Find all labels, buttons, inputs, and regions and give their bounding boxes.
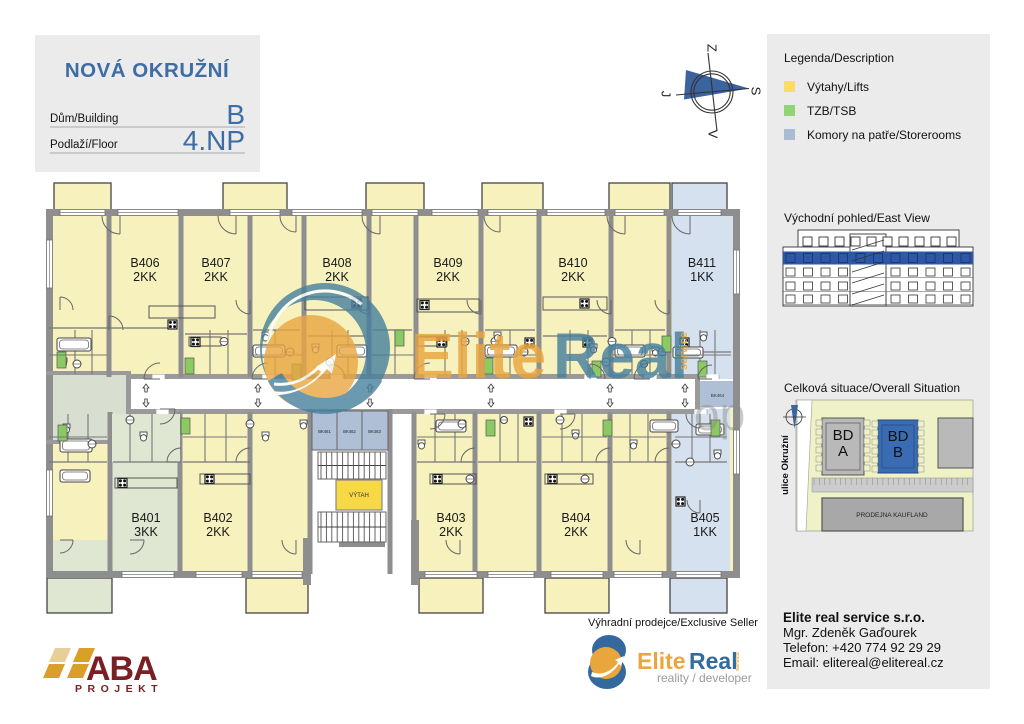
svg-text:B401: B401 — [131, 511, 160, 525]
svg-text:1KK: 1KK — [693, 525, 717, 539]
svg-text:2KK: 2KK — [204, 270, 228, 284]
svg-text:B402: B402 — [203, 511, 232, 525]
svg-text:reality / developer: reality / developer — [657, 671, 752, 685]
svg-text:Email: elitereal@elitereal.cz: Email: elitereal@elitereal.cz — [783, 655, 944, 670]
svg-text:BK461: BK461 — [318, 429, 331, 434]
svg-text:B410: B410 — [558, 256, 587, 270]
svg-text:2KK: 2KK — [439, 525, 463, 539]
svg-text:BK462: BK462 — [343, 429, 356, 434]
svg-text:B408: B408 — [322, 256, 351, 270]
svg-text:Real: Real — [553, 320, 688, 392]
svg-text:Podlaží/Floor: Podlaží/Floor — [50, 139, 118, 151]
svg-text:A: A — [838, 443, 848, 460]
svg-text:Celková situace/Overall Situat: Celková situace/Overall Situation — [784, 381, 960, 395]
svg-text:service: service — [678, 332, 690, 370]
svg-text:B409: B409 — [433, 256, 462, 270]
svg-text:B: B — [893, 444, 903, 461]
svg-text:VÝTAH: VÝTAH — [349, 492, 369, 499]
svg-text:2KK: 2KK — [436, 270, 460, 284]
svg-text:service: service — [735, 652, 741, 671]
svg-text:3KK: 3KK — [134, 525, 158, 539]
svg-text:Telefon: +420 774 92 29 29: Telefon: +420 774 92 29 29 — [783, 640, 941, 655]
svg-text:4.NP: 4.NP — [183, 125, 245, 156]
svg-text:2KK: 2KK — [325, 270, 349, 284]
svg-text:Dům/Building: Dům/Building — [50, 113, 118, 125]
svg-text:B406: B406 — [130, 256, 159, 270]
svg-text:B405: B405 — [690, 511, 719, 525]
svg-text:B403: B403 — [436, 511, 465, 525]
svg-text:Elite: Elite — [411, 320, 546, 392]
svg-text:S: S — [749, 87, 764, 96]
svg-text:Elite real service s.r.o.: Elite real service s.r.o. — [783, 610, 925, 625]
svg-text:Z: Z — [705, 44, 720, 52]
svg-text:Mgr. Zdeněk Gaďourek: Mgr. Zdeněk Gaďourek — [783, 625, 917, 640]
svg-text:B407: B407 — [201, 256, 230, 270]
svg-text:BD: BD — [833, 427, 854, 444]
svg-text:BK463: BK463 — [368, 429, 381, 434]
svg-text:B411: B411 — [688, 256, 716, 270]
svg-text:Legenda/Description: Legenda/Description — [784, 51, 894, 65]
svg-text:2KK: 2KK — [133, 270, 157, 284]
svg-text:2KK: 2KK — [206, 525, 230, 539]
svg-text:op: op — [694, 388, 745, 440]
svg-text:2KK: 2KK — [564, 525, 588, 539]
svg-text:ulice Okružní: ulice Okružní — [780, 435, 791, 495]
svg-text:B404: B404 — [561, 511, 590, 525]
svg-text:Komory na patře/Storerooms: Komory na patře/Storerooms — [807, 128, 961, 142]
svg-text:J: J — [659, 91, 674, 98]
svg-text:BD: BD — [888, 428, 909, 445]
svg-text:NOVÁ OKRUŽNÍ: NOVÁ OKRUŽNÍ — [65, 58, 230, 82]
svg-text:Výhradní prodejce/Exclusive Se: Výhradní prodejce/Exclusive Seller — [588, 617, 758, 629]
svg-text:V: V — [706, 130, 721, 139]
svg-text:1KK: 1KK — [690, 270, 714, 284]
svg-text:TZB/TSB: TZB/TSB — [807, 104, 856, 118]
svg-text:PRODEJNA KAUFLAND: PRODEJNA KAUFLAND — [856, 512, 928, 519]
svg-text:PROJEKT: PROJEKT — [75, 683, 163, 695]
svg-text:Východní pohled/East View: Východní pohled/East View — [784, 211, 930, 225]
svg-text:Výtahy/Lifts: Výtahy/Lifts — [807, 80, 869, 94]
svg-text:2KK: 2KK — [561, 270, 585, 284]
